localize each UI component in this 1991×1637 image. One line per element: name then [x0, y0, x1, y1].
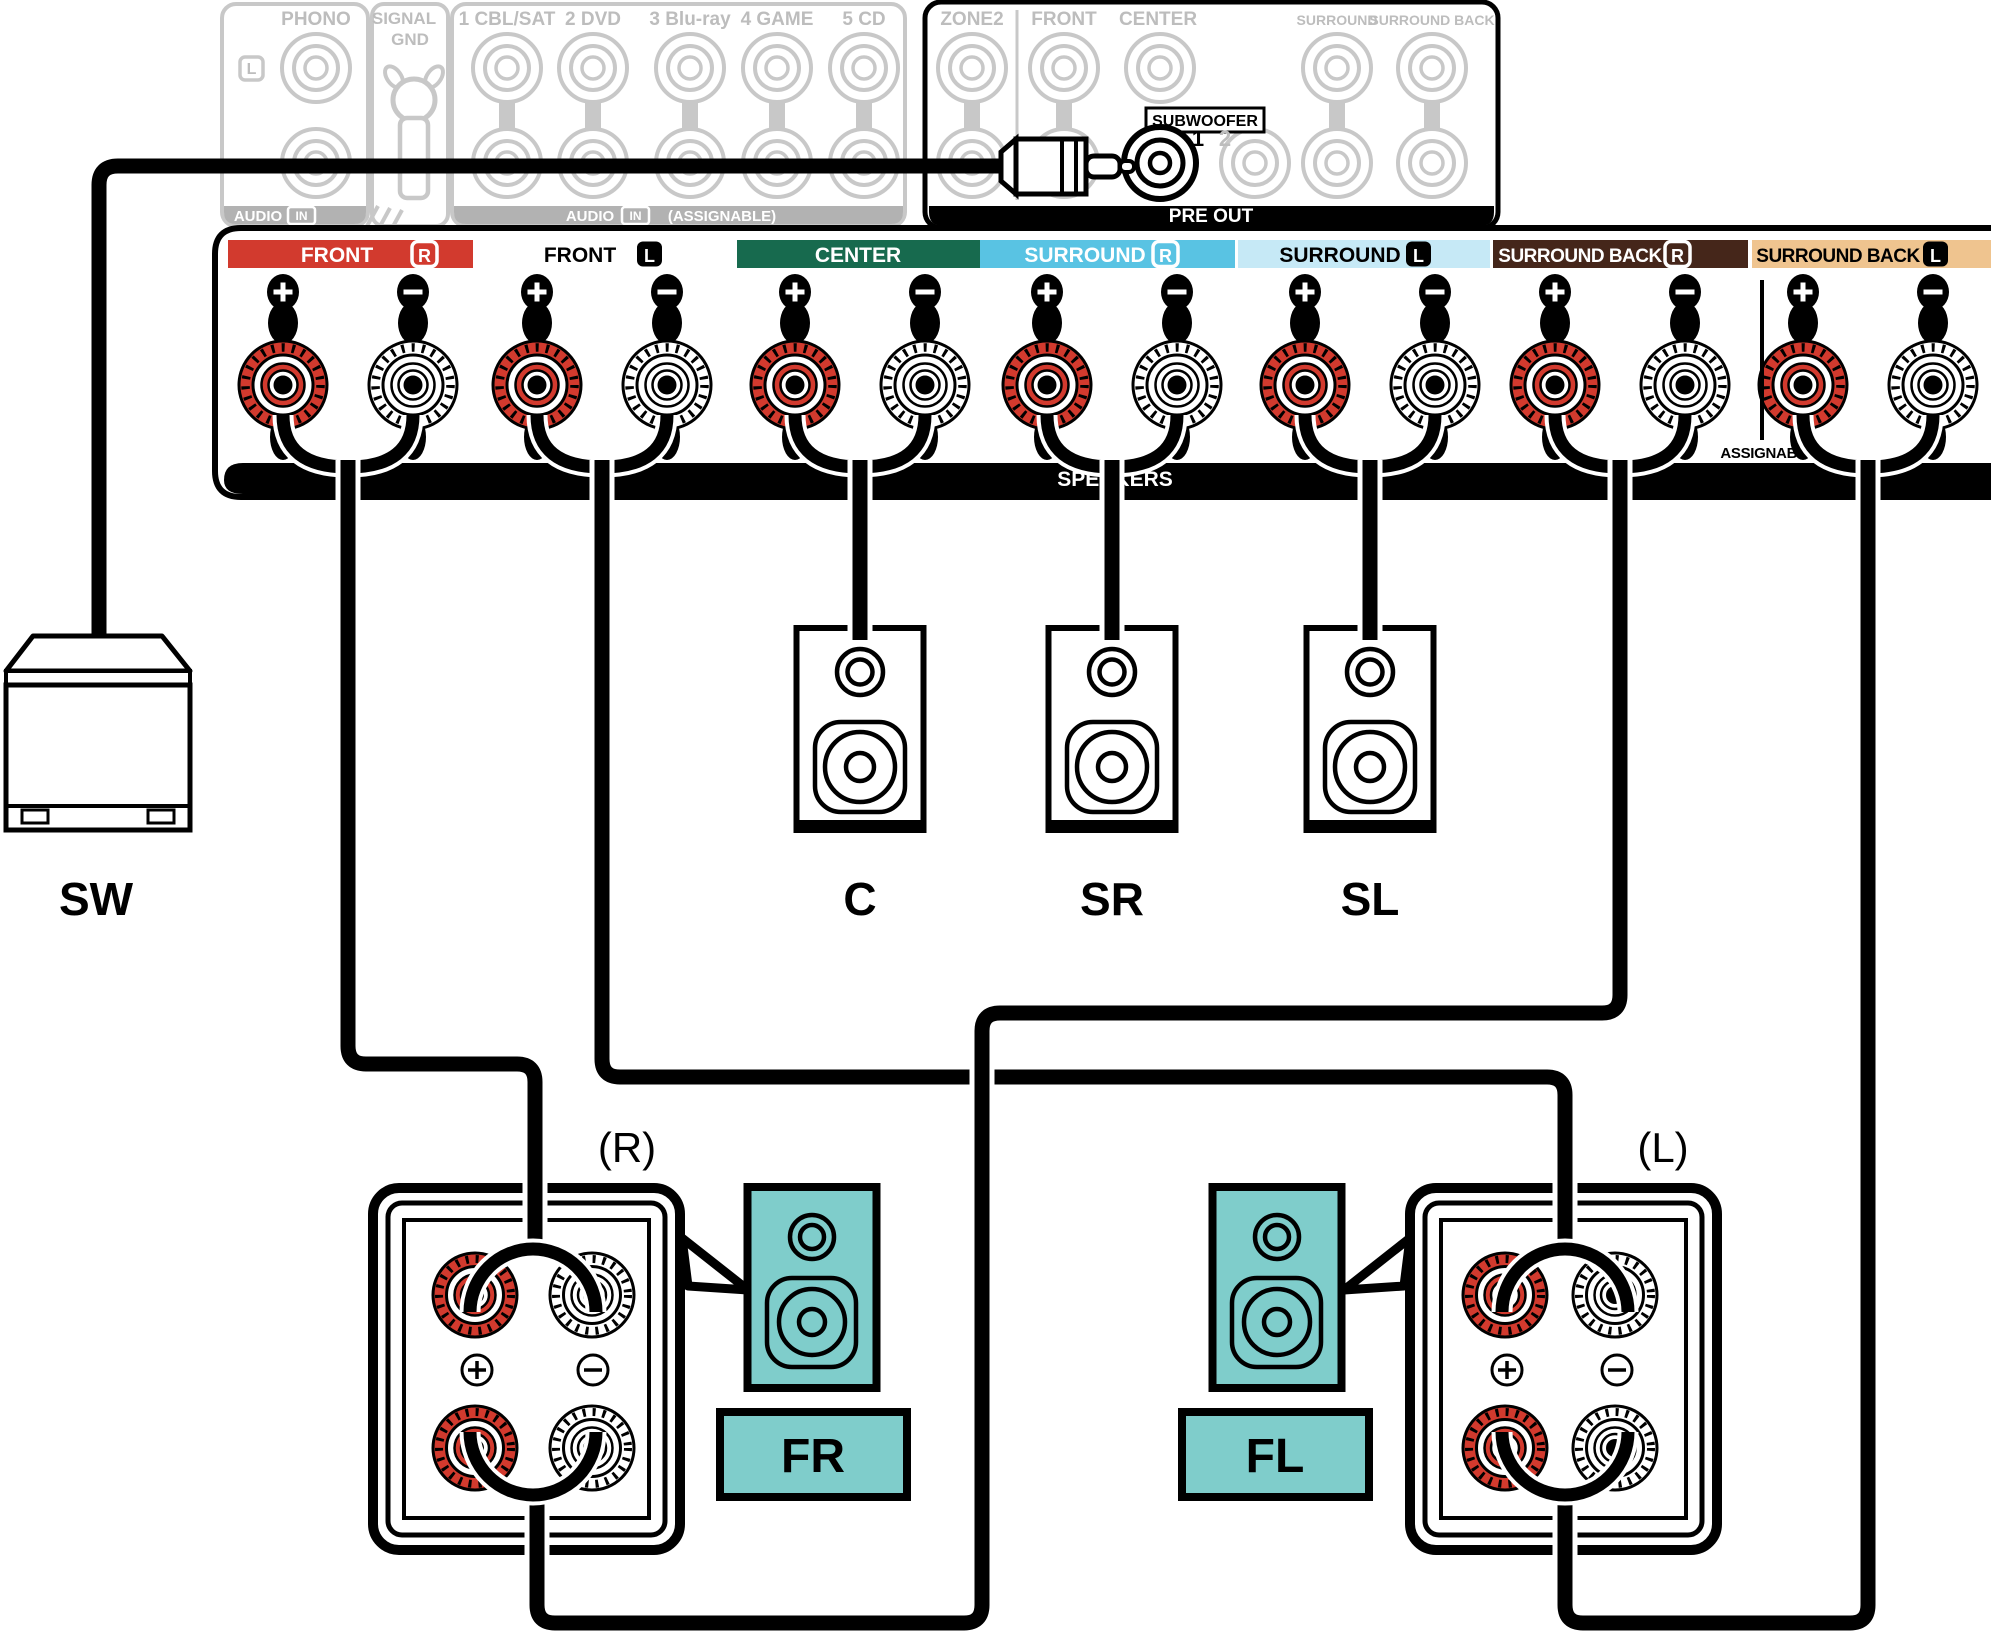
in-label-2: IN [630, 209, 642, 223]
analog-inputs-section: 1 CBL/SAT 2 DVD 3 Blu-ray 4 GAME 5 CD AU… [452, 4, 905, 226]
front-right-speaker [748, 1187, 877, 1388]
in-label: IN [296, 209, 308, 223]
input-dvd-label: 2 DVD [565, 9, 621, 30]
front-right-label: FR [720, 1412, 907, 1497]
zone2-label: ZONE2 [940, 9, 1003, 30]
svg-text:FRONT: FRONT [301, 244, 373, 267]
svg-text:FL: FL [1246, 1430, 1305, 1483]
phono-jack-l [282, 34, 350, 102]
svg-text:L: L [1413, 246, 1424, 266]
surround-preout-label: SURROUND [1297, 12, 1378, 28]
signal-gnd-section: SIGNAL GND [366, 4, 448, 232]
rca-plug-collar [1086, 156, 1120, 177]
rca-plug-pin [1120, 161, 1134, 172]
gnd-label: GND [391, 30, 429, 49]
assignable-paren-label: (ASSIGNABLE) [668, 208, 776, 225]
input-game-label: 4 GAME [741, 9, 814, 30]
wire-front-right [348, 460, 535, 1252]
channel-l-letter: L [247, 61, 257, 78]
label-center: CENTER [737, 240, 980, 268]
svg-text:FR: FR [781, 1430, 845, 1483]
speaker-connection-diagram: PHONO L AUDIO IN SIGNAL GND [0, 0, 1991, 1637]
pre-out-label: PRE OUT [1169, 206, 1254, 227]
rear-panel: PHONO L AUDIO IN SIGNAL GND [222, 2, 1498, 232]
front-left-label: FL [1182, 1412, 1369, 1497]
front-left-speaker [1213, 1187, 1342, 1388]
callout-arrow-right [682, 1238, 748, 1290]
label-front-l: FRONT L [544, 242, 662, 268]
label-surround-back-l: SURROUND BACK L [1752, 240, 1991, 268]
svg-text:CENTER: CENTER [815, 244, 901, 267]
right-channel-mark: (R) [598, 1124, 656, 1171]
surround-right-label: SR [1080, 873, 1144, 925]
surround-left-label: SL [1341, 873, 1400, 925]
svg-text:L: L [1930, 246, 1941, 266]
label-surround-back-r: SURROUND BACK R [1493, 240, 1748, 268]
center-speaker [797, 628, 924, 830]
svg-text:L: L [644, 246, 655, 266]
svg-text:R: R [418, 246, 431, 266]
center-preout-label: CENTER [1119, 9, 1197, 30]
subwoofer-2-label: 2 [1219, 126, 1231, 151]
pre-out-section: PRE OUT ZONE2 FRONT CENTER SURROUND SURR… [925, 2, 1498, 228]
callout-arrow-left [1344, 1238, 1410, 1290]
label-surround-l: SURROUND L [1238, 240, 1490, 268]
center-speaker-label: C [843, 873, 876, 925]
wire-front-left [602, 460, 1565, 1252]
svg-text:FRONT: FRONT [544, 244, 616, 267]
left-channel-mark: (L) [1637, 1124, 1688, 1171]
input-cd-label: 5 CD [842, 9, 885, 30]
signal-label: SIGNAL [372, 9, 436, 28]
front-preout-label: FRONT [1031, 9, 1097, 30]
svg-text:SURROUND: SURROUND [1279, 244, 1400, 267]
subwoofer-label-sw: SW [59, 873, 134, 925]
phono-label: PHONO [281, 9, 351, 30]
input-bluray-label: 3 Blu-ray [649, 9, 731, 30]
svg-text:R: R [1159, 246, 1172, 266]
svg-text:SURROUND BACK: SURROUND BACK [1756, 246, 1920, 267]
svg-text:SURROUND: SURROUND [1024, 244, 1145, 267]
svg-text:R: R [1671, 246, 1684, 266]
phono-section: PHONO L AUDIO IN [222, 4, 368, 226]
label-surround-r: SURROUND R [980, 240, 1235, 268]
surround-left-speaker [1307, 628, 1434, 830]
surround-back-preout-label: SURROUND BACK [1369, 12, 1494, 28]
input-cbl-sat-label: 1 CBL/SAT [459, 9, 556, 30]
audio-label-2: AUDIO [566, 208, 615, 225]
subwoofer-speaker [6, 636, 190, 830]
label-front-r: FRONT R [228, 240, 473, 268]
surround-right-speaker [1049, 628, 1176, 830]
audio-label: AUDIO [234, 208, 283, 225]
svg-text:SURROUND BACK: SURROUND BACK [1498, 246, 1662, 267]
